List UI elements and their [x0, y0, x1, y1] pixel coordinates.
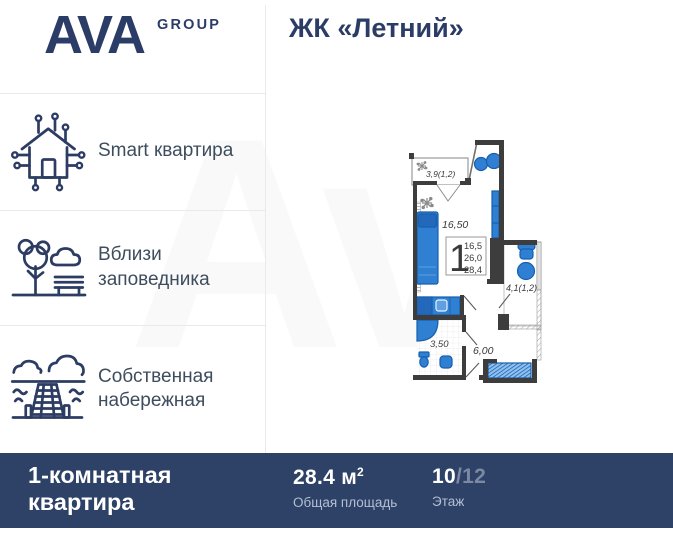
wardrobe-strip [492, 191, 499, 238]
total-area-stat: 28.4 м2 Общая площадь [293, 465, 397, 510]
area-2: 26,0 [464, 253, 482, 263]
vertical-divider [265, 5, 266, 455]
floor-total: /12 [456, 465, 486, 488]
balcony-table [518, 263, 535, 280]
feature-embankment: Собственная набережная [0, 325, 265, 453]
complex-title: ЖК «Летний» [289, 13, 464, 44]
floor-stat: 10/12 Этаж [432, 465, 486, 509]
floor-current: 10 [432, 465, 456, 488]
area-1: 16,5 [464, 241, 482, 251]
feature-smart-label: Smart квартира [98, 139, 258, 163]
park-icon [10, 225, 88, 311]
floor-caption: Этаж [432, 494, 486, 509]
living-room-label: 16,50 [442, 219, 468, 231]
area-3: 28,4 [464, 265, 482, 275]
smart-home-icon [10, 109, 88, 195]
hall-wardrobe [488, 363, 531, 378]
feature-embankment-label: Собственная набережная [98, 365, 258, 414]
balcony-right-label: 4,1(1,2) [506, 283, 537, 293]
bathroom-label: 3,50 [430, 339, 449, 350]
area-superscript: 2 [357, 465, 364, 479]
summary-bar: 1-комнатная квартира 28.4 м2 Общая площа… [0, 453, 673, 528]
feature-smart: Smart квартира [0, 93, 265, 210]
hallway-label: 6,00 [473, 345, 494, 357]
area-caption: Общая площадь [293, 495, 397, 510]
logo-suffix: GROUP [157, 17, 221, 33]
apartment-type: 1-комнатная квартира [28, 462, 268, 517]
ava-group-logo: AVA GROUP [44, 8, 144, 62]
kitchen-sink [436, 300, 447, 311]
feature-park: Вблизи заповедника [0, 210, 265, 325]
floor-plan: 1 16,5 26,0 28,4 3,9(1,2) 16,50 4,1(1,2)… [380, 130, 570, 400]
feature-park-label: Вблизи заповедника [98, 243, 258, 292]
plan-info-box: 1 16,5 26,0 28,4 [446, 237, 486, 280]
area-value: 28.4 м [293, 466, 357, 489]
logo-text: AVA [44, 5, 144, 65]
apartment-ad-banner: Av AVA GROUP ЖК «Летний» [0, 0, 673, 540]
bathroom-sink [440, 356, 452, 368]
stool-1 [475, 158, 488, 171]
balcony-top-label: 3,9(1,2) [426, 169, 455, 179]
embankment-icon [10, 346, 88, 432]
